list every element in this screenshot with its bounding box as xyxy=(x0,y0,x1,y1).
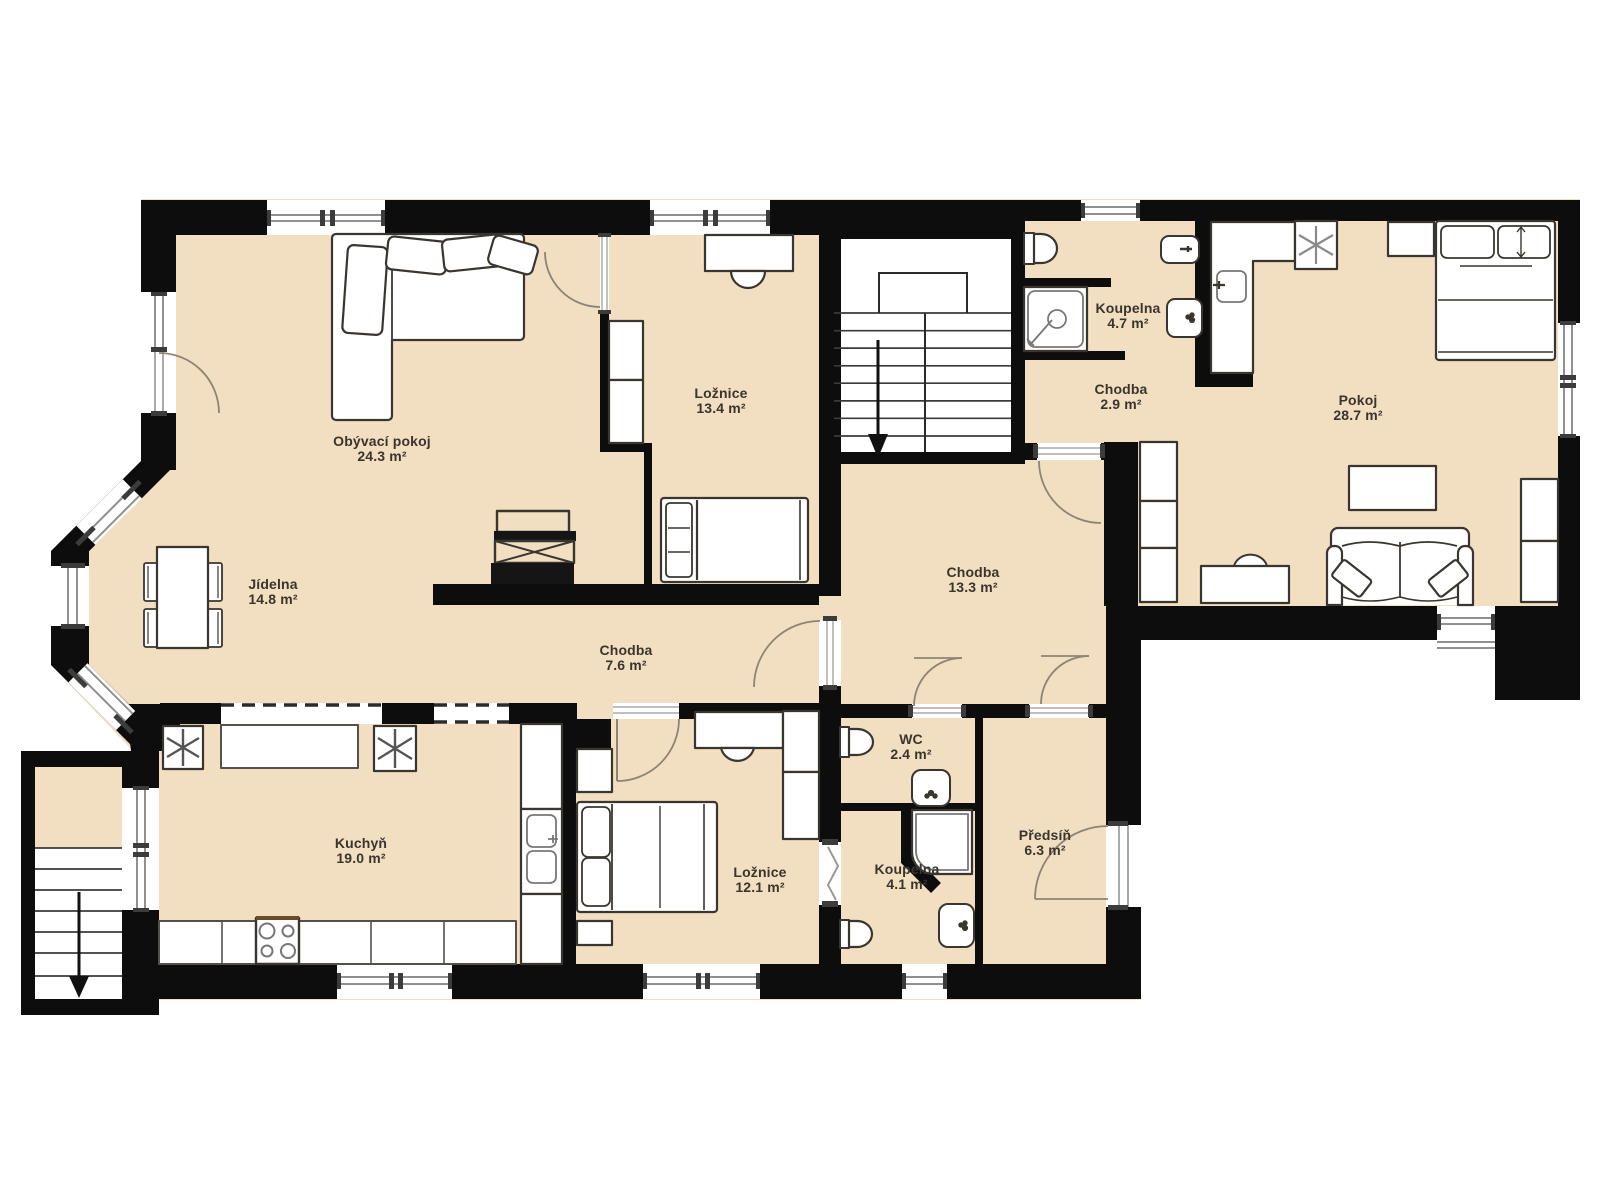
svg-text:Předsíň: Předsíň xyxy=(1019,827,1071,843)
svg-text:6.3 m²: 6.3 m² xyxy=(1024,842,1066,858)
svg-text:13.3 m²: 13.3 m² xyxy=(948,579,997,595)
svg-text:Ložnice: Ložnice xyxy=(733,864,786,880)
svg-text:Chodba: Chodba xyxy=(599,642,652,658)
svg-text:4.1 m²: 4.1 m² xyxy=(886,876,928,892)
svg-text:13.4 m²: 13.4 m² xyxy=(696,400,745,416)
svg-text:24.3 m²: 24.3 m² xyxy=(357,448,406,464)
svg-text:28.7 m²: 28.7 m² xyxy=(1333,407,1382,423)
svg-text:Pokoj: Pokoj xyxy=(1339,392,1378,408)
svg-text:Koupelna: Koupelna xyxy=(875,861,940,877)
svg-text:WC: WC xyxy=(899,731,923,747)
svg-text:14.8 m²: 14.8 m² xyxy=(248,591,297,607)
svg-text:12.1 m²: 12.1 m² xyxy=(735,879,784,895)
svg-text:2.4 m²: 2.4 m² xyxy=(890,746,932,762)
svg-text:19.0 m²: 19.0 m² xyxy=(336,850,385,866)
svg-text:7.6 m²: 7.6 m² xyxy=(605,657,647,673)
svg-text:Koupelna: Koupelna xyxy=(1096,300,1161,316)
svg-text:Chodba: Chodba xyxy=(1094,381,1147,397)
svg-text:Obývací pokoj: Obývací pokoj xyxy=(333,433,431,449)
svg-text:Chodba: Chodba xyxy=(946,564,999,580)
svg-text:Ložnice: Ložnice xyxy=(694,385,747,401)
svg-text:4.7 m²: 4.7 m² xyxy=(1107,315,1149,331)
svg-text:2.9 m²: 2.9 m² xyxy=(1100,396,1142,412)
svg-text:Kuchyň: Kuchyň xyxy=(335,835,387,851)
svg-text:Jídelna: Jídelna xyxy=(248,576,297,592)
